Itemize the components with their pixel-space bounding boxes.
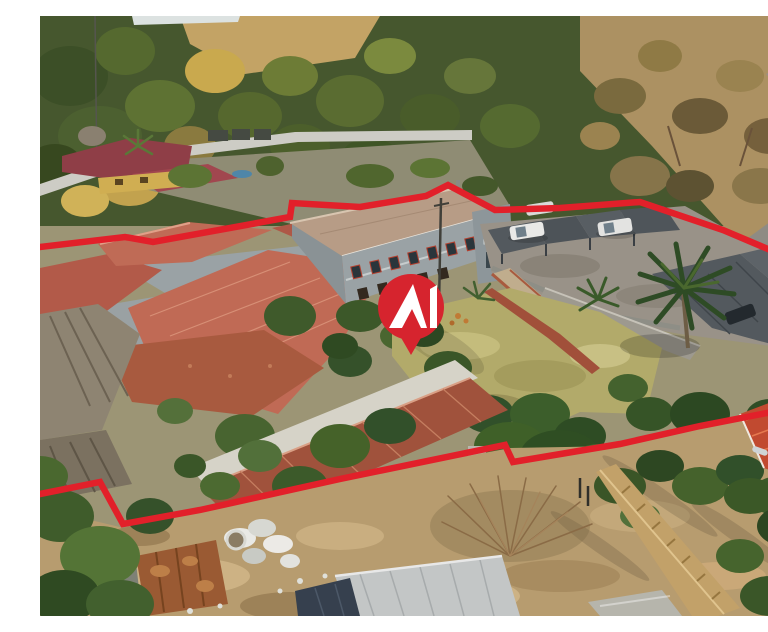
aerial-property-photo (40, 16, 768, 616)
pool-sliver (232, 170, 252, 178)
thatch-gazebo (78, 126, 106, 146)
